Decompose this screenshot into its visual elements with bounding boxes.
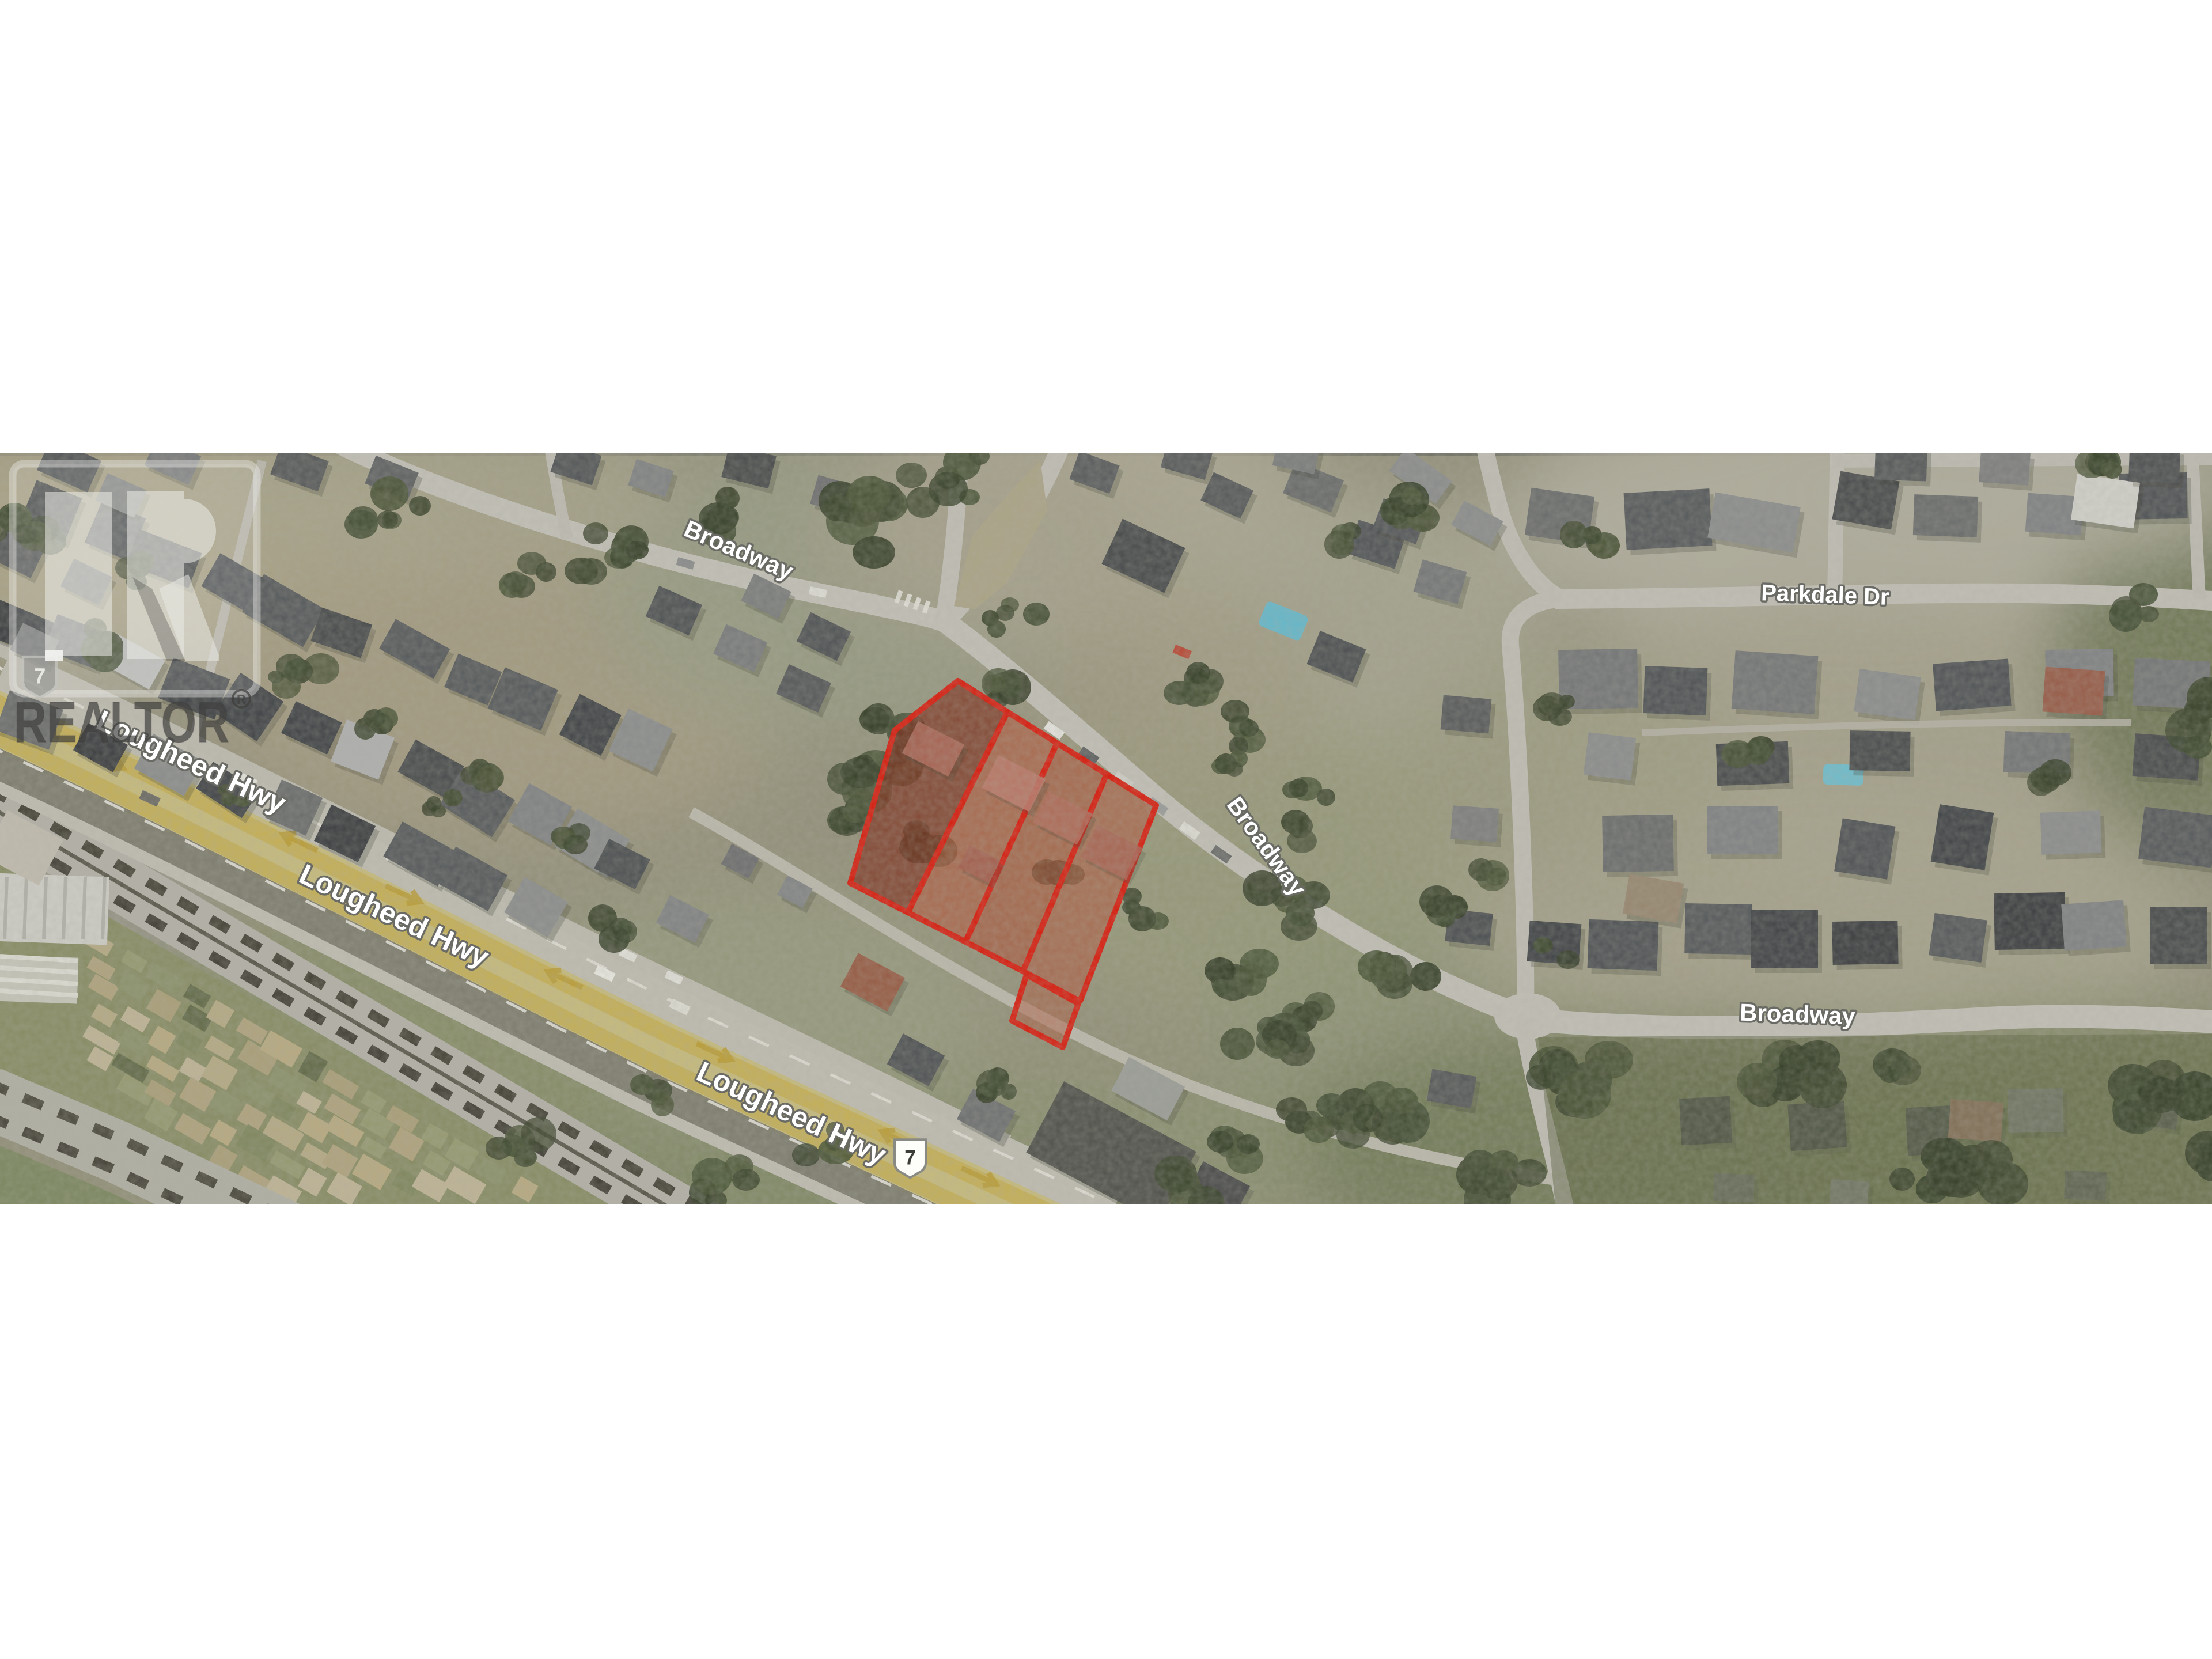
svg-text:7: 7 bbox=[34, 664, 46, 688]
svg-text:Broadway: Broadway bbox=[1739, 999, 1856, 1030]
svg-text:REALTOR: REALTOR bbox=[14, 690, 229, 755]
svg-text:R: R bbox=[237, 692, 246, 707]
svg-text:7: 7 bbox=[904, 1147, 916, 1169]
svg-text:Parkdale Dr: Parkdale Dr bbox=[1761, 580, 1890, 610]
